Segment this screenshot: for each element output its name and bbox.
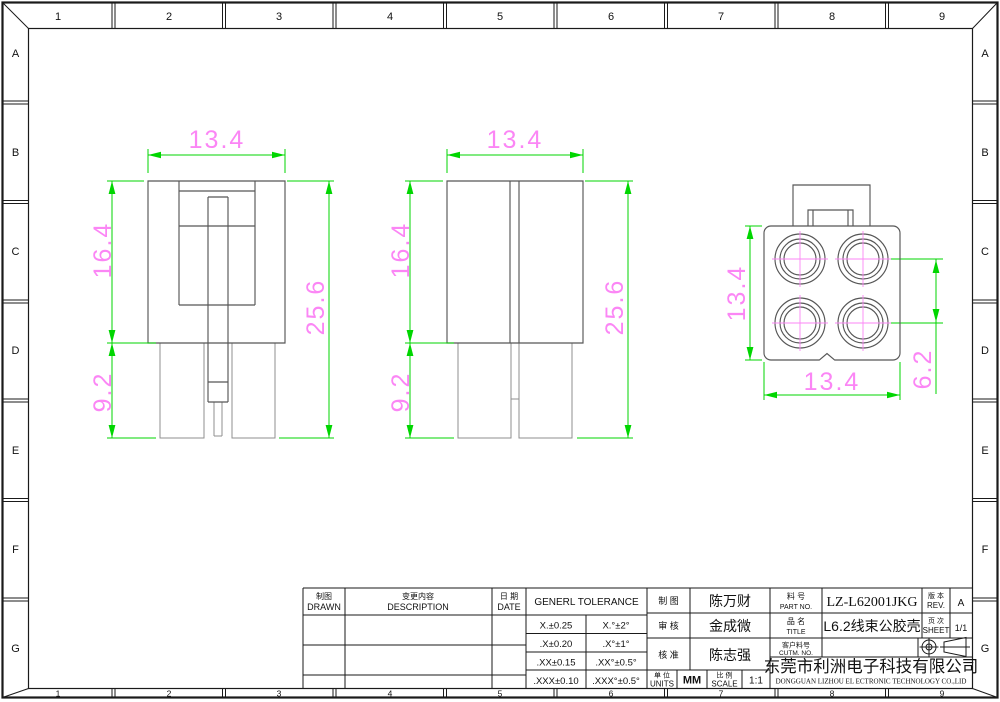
grid-label: 1: [56, 689, 61, 699]
grid-label: E: [981, 445, 988, 457]
front-leg-height-dim: 9.2: [89, 372, 117, 413]
part-no-label-en: PART NO.: [780, 604, 812, 611]
grid-label: E: [12, 445, 19, 457]
customer-label-en: CUTM. NO.: [779, 650, 813, 657]
signoff-name: 陈志强: [709, 647, 751, 663]
sheet-label-cn: 页 次: [928, 616, 944, 625]
grid-label: C: [981, 246, 989, 258]
scale-value: 1:1: [749, 676, 763, 687]
sheet-value: 1/1: [955, 623, 968, 633]
customer-label-cn: 客户料号: [782, 641, 810, 650]
company-name-en: DONGGUAN LIZHOU EL ECTRONIC TECHNOLOGY C…: [776, 678, 967, 686]
rear-width-dim: 13.4: [804, 368, 861, 396]
grid-column-labels-top: 1 2 3 4 5 6 7 8 9: [55, 11, 945, 23]
rear-dimensions: 13.4 13.4 6.2: [723, 226, 939, 400]
signoff-label: 核 准: [658, 649, 679, 660]
front-dimension-arrows: [109, 152, 333, 438]
drawing-sheet: 1 2 3 4 5 6 7 8 9 1 2 3 4 5 6 7 8 9 A B …: [0, 0, 1000, 702]
scale-label-en: SCALE: [711, 680, 737, 689]
grid-label: 9: [939, 11, 945, 23]
rear-cavity-circles: [775, 234, 888, 348]
side-body-height-dim: 16.4: [387, 222, 415, 279]
grid-label: D: [981, 345, 989, 357]
grid-label: 6: [609, 689, 614, 699]
rear-latch-outline: [793, 185, 870, 226]
units-label-cn: 单 位: [654, 671, 670, 680]
units-label-en: UNITS: [650, 680, 674, 689]
tolerance-cell: .XXX°±0.5°: [592, 676, 640, 687]
drawn-label-en: DRAWN: [307, 602, 341, 612]
signoff-name: 陈万财: [709, 593, 751, 609]
grid-label: 8: [830, 689, 835, 699]
grid-label: 8: [829, 11, 835, 23]
grid-label: 5: [498, 689, 503, 699]
grid-label: G: [981, 643, 990, 655]
grid-label: 7: [718, 11, 724, 23]
grid-label: 7: [719, 689, 724, 699]
grid-label: A: [981, 48, 989, 60]
tolerance-cell: .X°±1°: [602, 639, 629, 650]
grid-label: 4: [388, 689, 393, 699]
side-housing-outline: [447, 181, 583, 343]
front-view: 13.4 16.4 9.2 25.6: [89, 126, 334, 438]
units-value: MM: [683, 675, 701, 687]
signoff-label: 审 核: [658, 620, 679, 631]
front-dimensions: 13.4 16.4 9.2 25.6: [89, 126, 334, 438]
front-housing-outline: [148, 181, 285, 343]
side-total-height-dim: 25.6: [601, 279, 629, 336]
description-label-cn: 变更内容: [402, 591, 434, 601]
grid-label: 6: [608, 11, 614, 23]
description-label-en: DESCRIPTION: [387, 602, 449, 612]
tolerance-cell: .XX±0.15: [536, 658, 575, 669]
title-value: L6.2线束公胶壳: [823, 618, 920, 634]
grid-label: 3: [276, 11, 282, 23]
front-body-height-dim: 16.4: [89, 222, 117, 279]
front-dimension-lines: [107, 149, 334, 438]
front-latch-bar: [208, 197, 228, 402]
tolerance-cell: .XXX±0.10: [533, 676, 578, 687]
side-left-leg: [458, 343, 511, 438]
date-label-cn: 日 期: [500, 592, 518, 601]
company-name-cn: 东莞市利洲电子科技有限公司: [764, 657, 979, 676]
projection-symbol-icon: [920, 638, 971, 657]
title-block: 制图 DRAWN 变更内容 DESCRIPTION 日 期 DATE GENER…: [303, 588, 978, 689]
side-right-leg: [519, 343, 572, 438]
rev-label-cn: 版 本: [928, 591, 944, 600]
scale-label-cn: 比 例: [717, 671, 733, 680]
front-left-leg: [160, 343, 204, 438]
grid-label: 5: [497, 11, 503, 23]
side-leg-height-dim: 9.2: [387, 372, 415, 413]
part-no-value: LZ-L62001JKG: [827, 595, 918, 610]
title-label-cn: 品 名: [787, 616, 805, 626]
grid-label: F: [12, 544, 19, 556]
tolerance-cell: X.±0.25: [540, 621, 573, 632]
tolerance-cell: .X±0.20: [540, 639, 573, 650]
grid-label: D: [12, 345, 20, 357]
tolerance-cell: .XX°±0.5°: [595, 658, 637, 669]
part-no-label-cn: 料 号: [787, 591, 805, 601]
grid-label: B: [981, 147, 988, 159]
front-center-pin: [214, 402, 222, 436]
rev-value: A: [958, 598, 965, 609]
grid-label: G: [11, 643, 20, 655]
grid-label: B: [12, 147, 19, 159]
signoff-name: 金成微: [709, 618, 751, 634]
rear-notch-mask: [819, 359, 835, 362]
rear-height-dim: 13.4: [723, 265, 751, 322]
rear-pitch-dim: 6.2: [909, 349, 937, 390]
drawn-label-cn: 制图: [316, 591, 332, 601]
side-width-dim: 13.4: [487, 126, 544, 154]
front-total-height-dim: 25.6: [302, 279, 330, 336]
grid-label: C: [12, 246, 20, 258]
grid-label: 2: [167, 689, 172, 699]
grid-label: F: [982, 544, 989, 556]
tolerance-cell: X.°±2°: [602, 621, 629, 632]
side-view: 13.4 16.4 9.2 25.6: [387, 126, 633, 438]
date-label-en: DATE: [497, 602, 520, 612]
grid-label: 4: [387, 11, 393, 23]
rear-center-marks: [772, 231, 891, 351]
rear-view: 13.4 13.4 6.2: [723, 185, 943, 400]
grid-label: 9: [940, 689, 945, 699]
signoff-label: 制 图: [658, 595, 679, 606]
front-width-dim: 13.4: [189, 126, 246, 154]
front-right-leg: [232, 343, 275, 438]
sheet-label-en: SHEET: [923, 626, 950, 635]
drawing-canvas: 1 2 3 4 5 6 7 8 9 1 2 3 4 5 6 7 8 9 A B …: [0, 0, 1000, 702]
grid-row-labels-left: A B C D E F G: [11, 48, 20, 655]
title-label-en: TITLE: [786, 629, 805, 636]
grid-row-labels-right: A B C D E F G: [981, 48, 990, 655]
grid-label: 1: [55, 11, 61, 23]
tolerance-header: GENERL TOLERANCE: [534, 597, 639, 608]
grid-label: A: [12, 48, 20, 60]
grid-label: 2: [166, 11, 172, 23]
grid-label: 3: [277, 689, 282, 699]
rev-label-en: REV.: [927, 601, 945, 610]
